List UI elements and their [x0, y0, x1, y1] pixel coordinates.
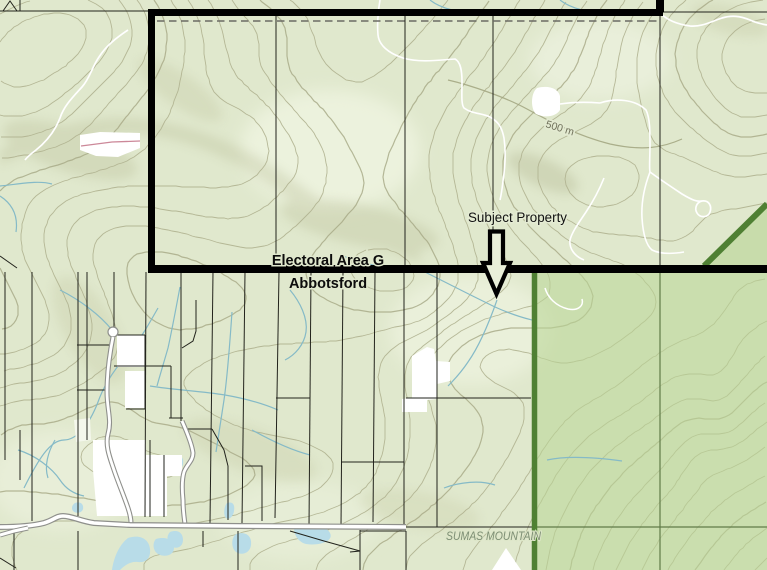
svg-text:SUMAS MOUNTAIN: SUMAS MOUNTAIN: [446, 531, 542, 543]
svg-text:Electoral Area G: Electoral Area G: [272, 253, 384, 269]
svg-text:Abbotsford: Abbotsford: [289, 276, 367, 292]
svg-text:Subject Property: Subject Property: [468, 210, 567, 225]
